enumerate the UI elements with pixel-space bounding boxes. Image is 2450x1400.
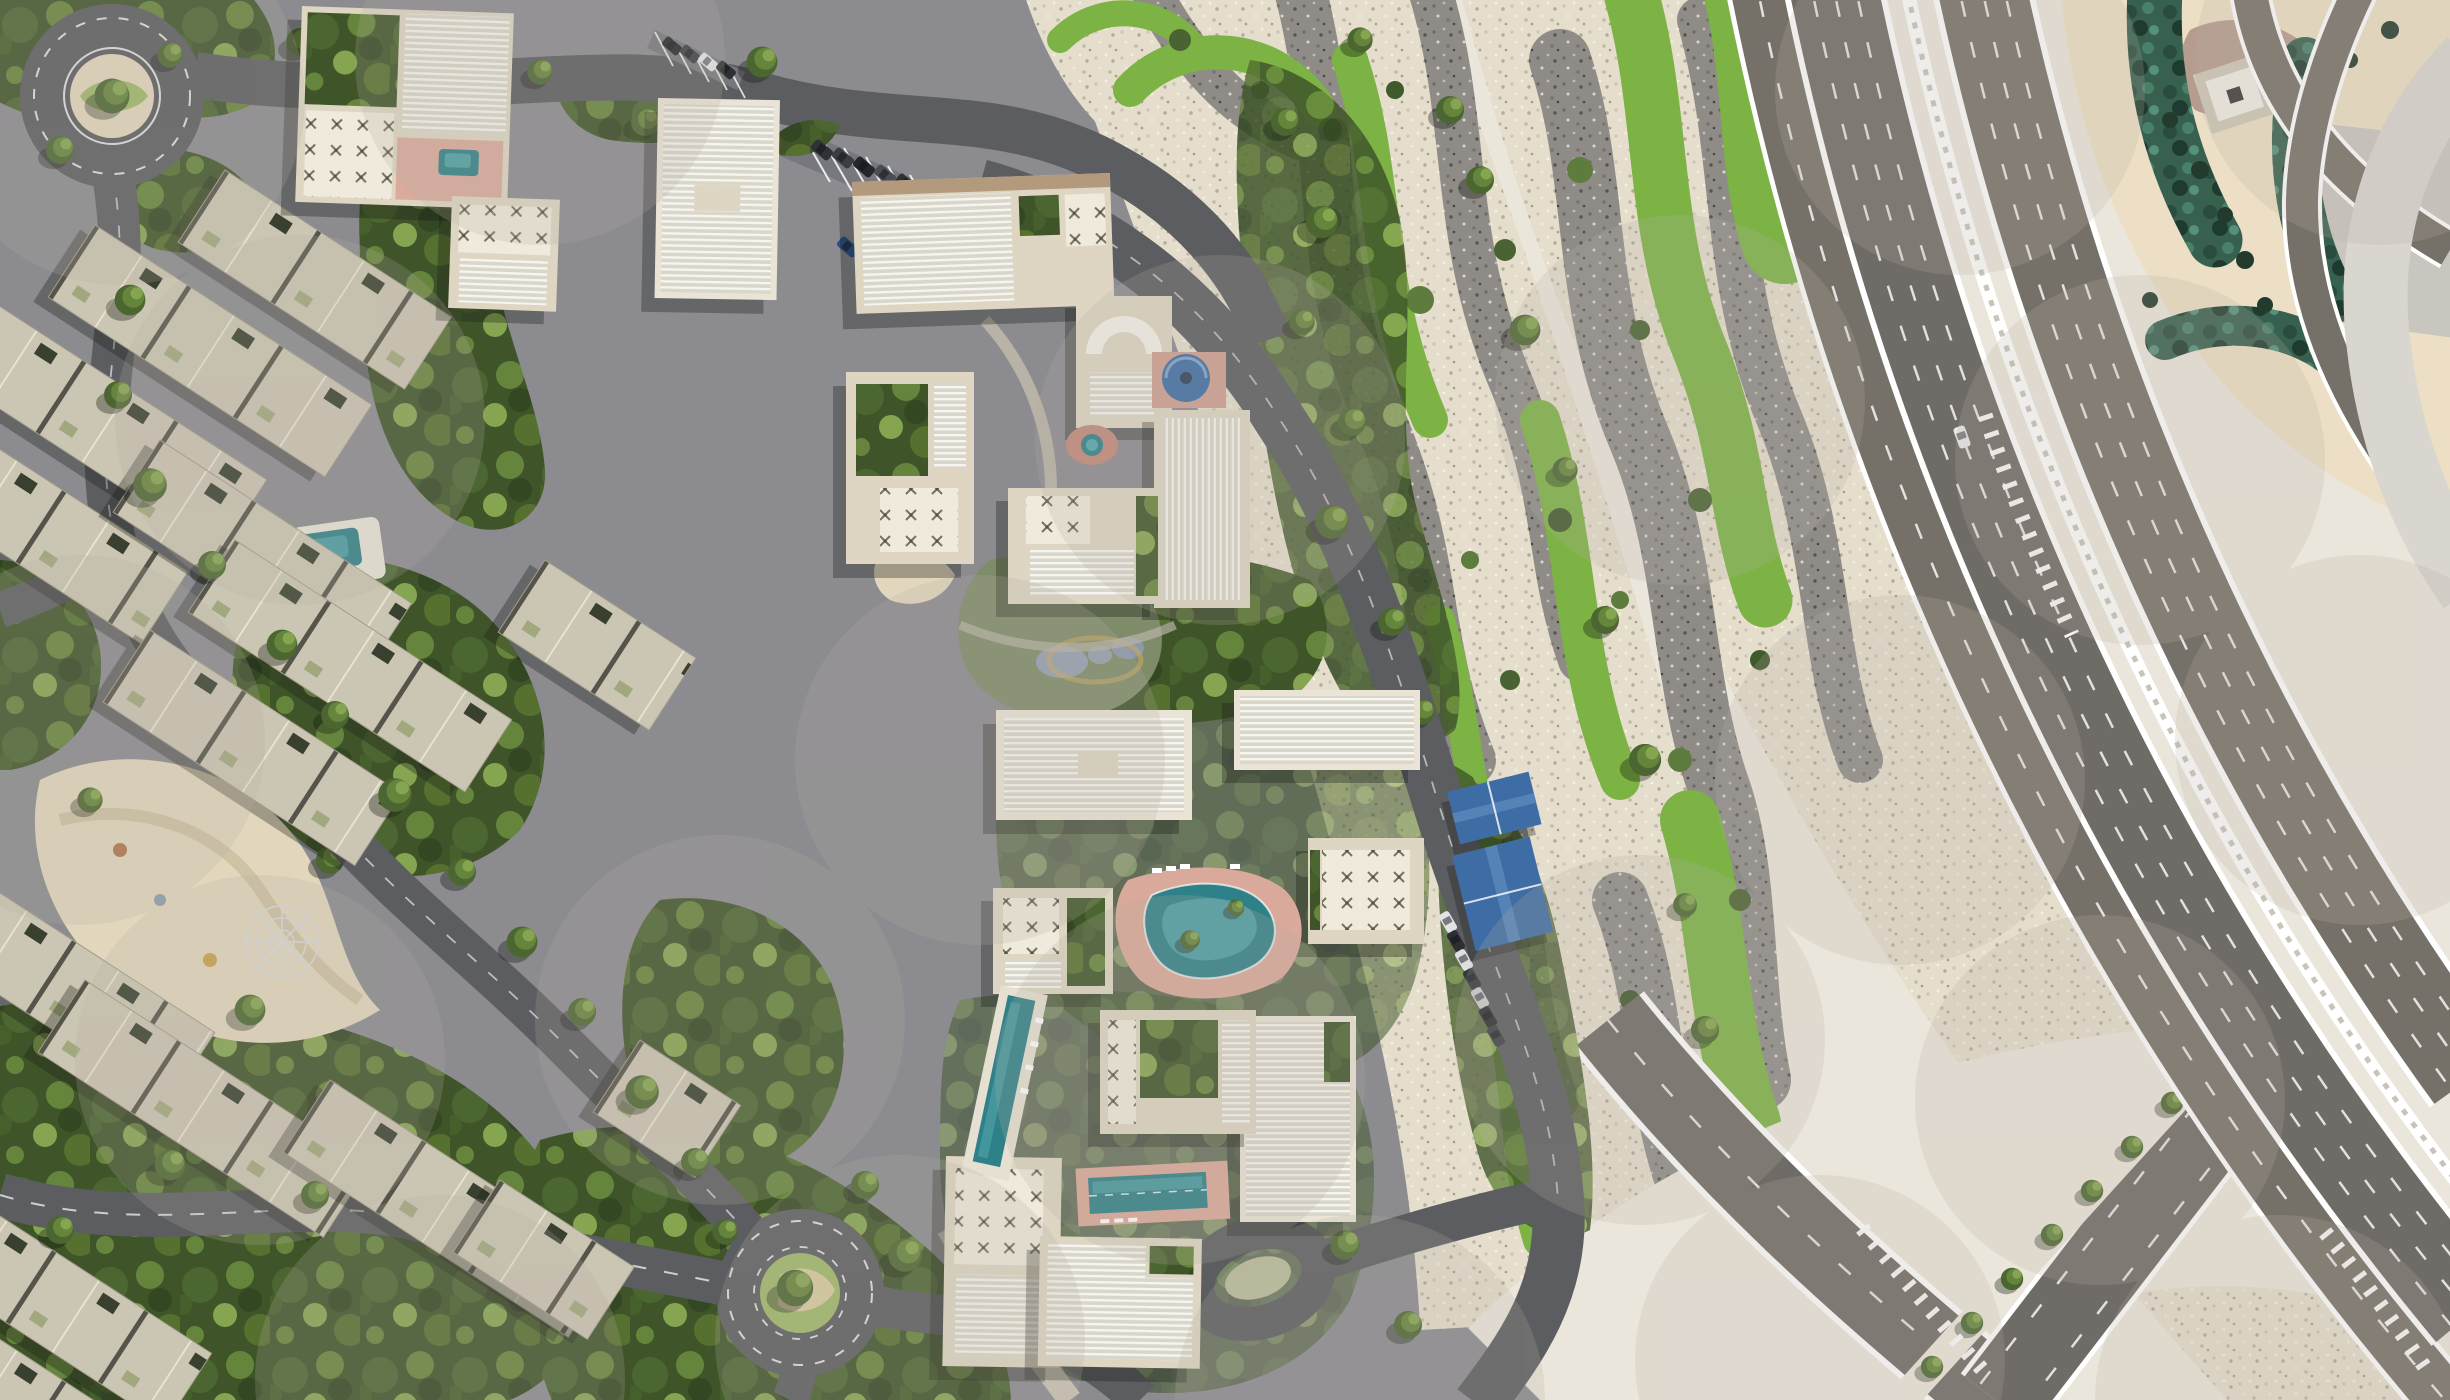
masterplan-scene [0, 0, 2450, 1400]
building-5 [833, 372, 974, 578]
building-10 [1222, 690, 1420, 783]
aerial-masterplan-render [0, 0, 2450, 1400]
building-12 [1296, 838, 1424, 957]
building-4 [838, 173, 1115, 329]
